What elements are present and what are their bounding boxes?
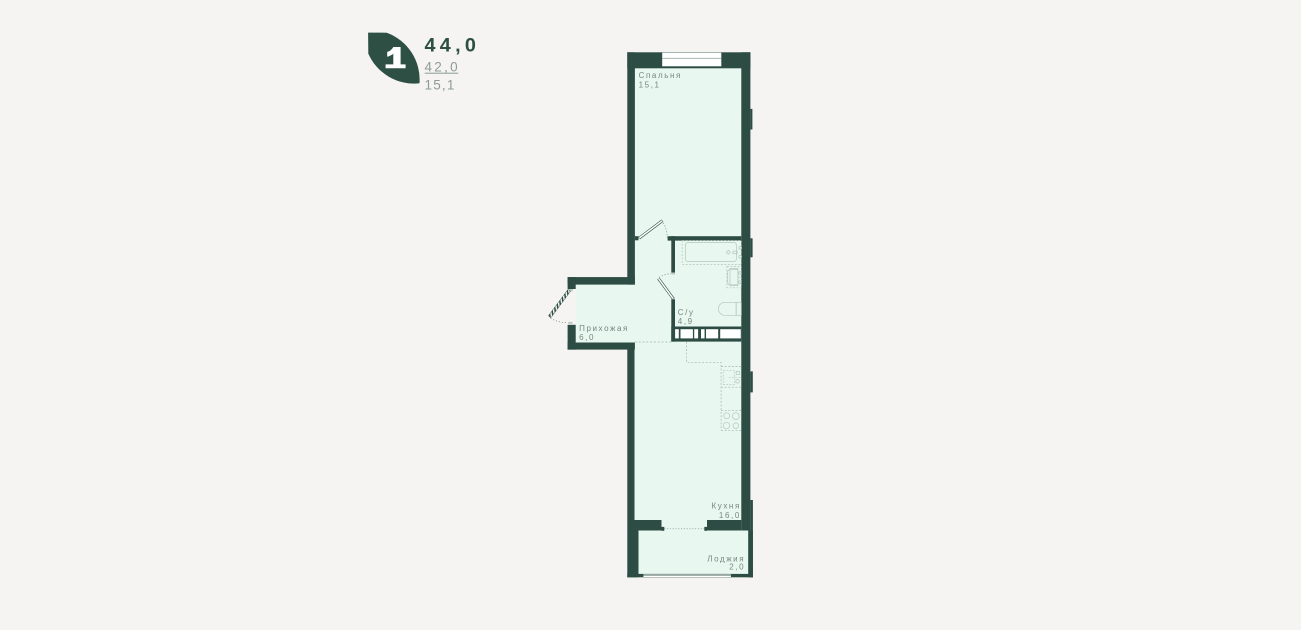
- svg-text:4,9: 4,9: [678, 317, 694, 326]
- svg-text:15,1: 15,1: [639, 81, 661, 90]
- svg-text:2,0: 2,0: [729, 562, 745, 571]
- svg-text:42,0: 42,0: [425, 59, 460, 74]
- svg-text:Прихожая: Прихожая: [579, 324, 629, 333]
- svg-text:Кухня: Кухня: [711, 501, 740, 510]
- svg-text:6,0: 6,0: [579, 333, 595, 342]
- svg-text:15,1: 15,1: [425, 78, 456, 93]
- svg-text:16,0: 16,0: [719, 511, 741, 520]
- svg-text:С/у: С/у: [678, 308, 695, 317]
- svg-text:Спальня: Спальня: [639, 71, 682, 80]
- svg-text:44,0: 44,0: [425, 35, 481, 57]
